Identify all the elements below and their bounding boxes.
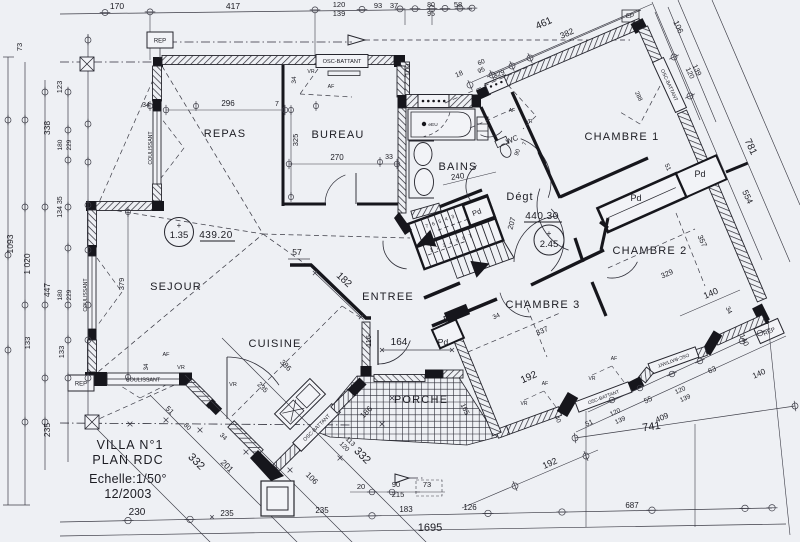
svg-text:126: 126 — [463, 503, 477, 512]
svg-text:73: 73 — [423, 480, 431, 489]
svg-text:183: 183 — [399, 505, 413, 514]
svg-text:133: 133 — [57, 346, 66, 359]
svg-text:58: 58 — [454, 0, 462, 9]
svg-text:73: 73 — [15, 43, 24, 51]
svg-text:+: + — [177, 221, 182, 230]
svg-text:+: + — [547, 229, 552, 238]
svg-text:235: 235 — [315, 506, 329, 515]
svg-text:OSC-BATTANT: OSC-BATTANT — [323, 59, 362, 65]
svg-text:164: 164 — [391, 337, 408, 348]
svg-text:440.30: 440.30 — [525, 211, 559, 222]
svg-text:ENTREE: ENTREE — [362, 291, 414, 303]
svg-text:Echelle:1/50°: Echelle:1/50° — [89, 472, 167, 486]
svg-text:12/2003: 12/2003 — [104, 487, 151, 501]
svg-text:VR: VR — [307, 69, 314, 75]
svg-text:229: 229 — [66, 289, 73, 300]
svg-text:95: 95 — [427, 11, 435, 18]
svg-text:235: 235 — [42, 423, 52, 437]
svg-text:270: 270 — [330, 153, 344, 162]
svg-text:20: 20 — [357, 482, 365, 491]
svg-text:447: 447 — [42, 283, 52, 297]
svg-text:180: 180 — [57, 139, 64, 150]
svg-text:7: 7 — [275, 101, 279, 108]
svg-text:eEU: eEU — [428, 122, 438, 128]
svg-text:133: 133 — [23, 337, 32, 350]
svg-text:Pd: Pd — [630, 193, 641, 203]
svg-text:100: 100 — [403, 64, 412, 77]
svg-text:SEJOUR: SEJOUR — [150, 281, 202, 293]
svg-text:COULISSANT: COULISSANT — [148, 131, 154, 165]
svg-text:CHAMBRE 2: CHAMBRE 2 — [613, 245, 688, 257]
svg-text:338: 338 — [42, 121, 52, 135]
svg-text:37: 37 — [390, 1, 398, 10]
svg-text:57: 57 — [292, 247, 302, 257]
svg-text:CHAMBRE 3: CHAMBRE 3 — [506, 299, 581, 311]
svg-text:Pd: Pd — [438, 337, 449, 347]
svg-text:AF: AF — [328, 84, 335, 90]
svg-text:123: 123 — [55, 81, 64, 94]
svg-text:230: 230 — [129, 507, 146, 518]
svg-text:34: 34 — [291, 76, 298, 84]
svg-text:170: 170 — [110, 1, 124, 11]
svg-text:439.20: 439.20 — [199, 230, 233, 241]
svg-text:VR: VR — [521, 401, 528, 407]
svg-text:235: 235 — [220, 509, 234, 518]
svg-text:134 35: 134 35 — [57, 196, 64, 218]
svg-text:COULISSANT: COULISSANT — [126, 378, 161, 384]
svg-text:180: 180 — [57, 289, 64, 300]
svg-text:EP: EP — [626, 14, 634, 20]
svg-text:417: 417 — [226, 1, 240, 11]
svg-text:2.45: 2.45 — [540, 239, 559, 250]
svg-text:AF: AF — [509, 108, 515, 114]
svg-text:296: 296 — [221, 99, 235, 108]
svg-text:VR: VR — [526, 119, 533, 125]
svg-text:1695: 1695 — [418, 522, 442, 534]
svg-text:116: 116 — [364, 335, 373, 347]
svg-text:80: 80 — [427, 2, 435, 9]
svg-text:CHAMBRE 1: CHAMBRE 1 — [585, 131, 660, 143]
svg-text:REP: REP — [75, 382, 87, 388]
svg-text:325: 325 — [291, 134, 300, 147]
svg-text:VR: VR — [589, 376, 596, 382]
svg-text:1.35: 1.35 — [170, 230, 189, 241]
svg-text:379: 379 — [117, 278, 126, 291]
svg-text:AF: AF — [162, 352, 170, 358]
svg-text:229: 229 — [66, 139, 73, 150]
svg-text:PORCHE: PORCHE — [394, 394, 448, 406]
svg-text:VR: VR — [177, 365, 185, 371]
svg-text:120: 120 — [333, 0, 346, 9]
svg-text:AF: AF — [542, 381, 548, 387]
svg-text:REP: REP — [154, 39, 166, 45]
svg-text:33: 33 — [385, 154, 393, 161]
svg-text:34: 34 — [144, 363, 150, 370]
svg-text:CUISINE: CUISINE — [248, 338, 301, 350]
svg-text:REPAS: REPAS — [204, 128, 246, 140]
svg-text:1 020: 1 020 — [22, 253, 32, 275]
svg-text:BUREAU: BUREAU — [311, 129, 364, 141]
svg-text:93: 93 — [374, 1, 382, 10]
svg-text:VR: VR — [229, 382, 237, 388]
svg-text:Dégt: Dégt — [506, 191, 533, 203]
svg-text:1093: 1093 — [5, 234, 15, 253]
svg-text:139: 139 — [333, 9, 346, 18]
svg-text:Pd: Pd — [694, 169, 705, 179]
svg-text:AF: AF — [611, 356, 617, 362]
svg-text:VILLA N°1: VILLA N°1 — [97, 438, 164, 452]
svg-text:687: 687 — [625, 501, 639, 510]
